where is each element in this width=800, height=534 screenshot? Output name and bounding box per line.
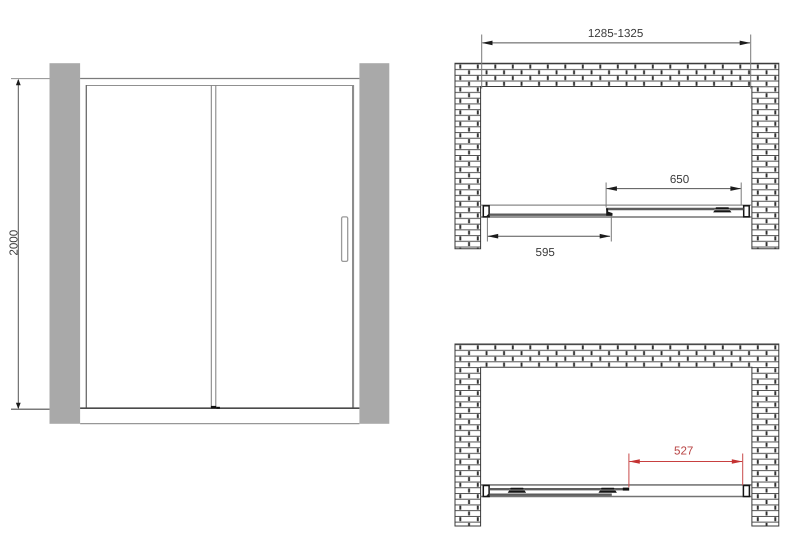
svg-text:595: 595 xyxy=(536,246,555,259)
svg-text:527: 527 xyxy=(674,445,693,458)
svg-text:1285-1325: 1285-1325 xyxy=(588,27,643,40)
svg-text:2000: 2000 xyxy=(8,230,21,256)
svg-text:650: 650 xyxy=(670,173,689,186)
